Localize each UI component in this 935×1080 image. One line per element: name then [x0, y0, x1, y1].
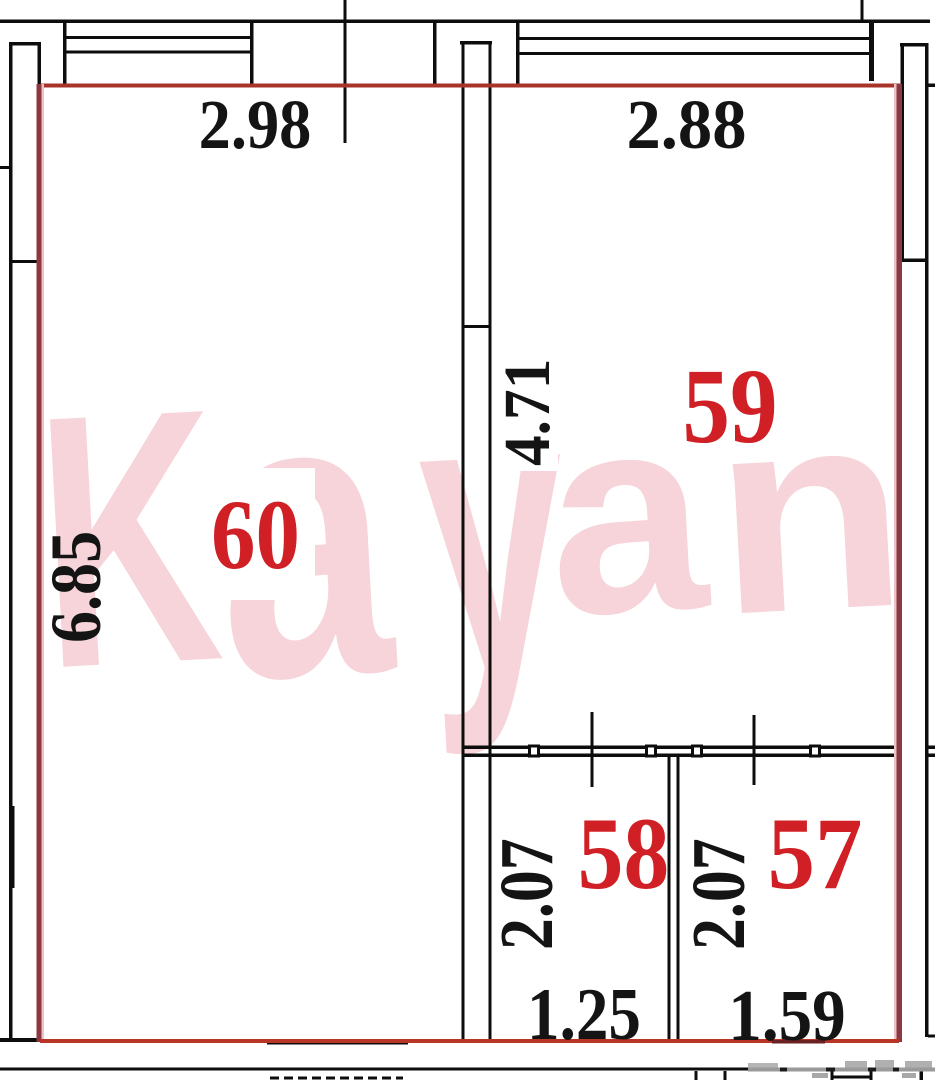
svg-text:2.98: 2.98: [199, 86, 312, 164]
svg-text:58: 58: [578, 797, 670, 911]
svg-text:60: 60: [211, 480, 300, 590]
svg-text:6.85: 6.85: [36, 531, 116, 643]
svg-text:59: 59: [682, 347, 777, 465]
svg-text:1.59: 1.59: [728, 975, 846, 1056]
svg-text:2.07: 2.07: [677, 838, 761, 950]
svg-text:2.07: 2.07: [485, 838, 569, 950]
svg-text:4.71: 4.71: [490, 359, 564, 466]
svg-text:57: 57: [768, 797, 863, 910]
svg-text:1.25: 1.25: [527, 974, 641, 1056]
svg-text:2.88: 2.88: [626, 85, 746, 163]
